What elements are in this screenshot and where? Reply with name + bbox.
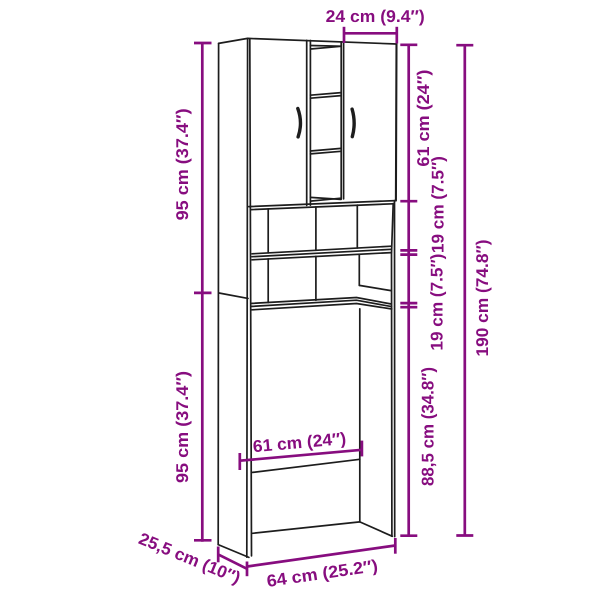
svg-text:19 cm (7.5″): 19 cm (7.5″)	[429, 156, 448, 253]
svg-text:190 cm (74.8″): 190 cm (74.8″)	[473, 240, 492, 357]
svg-text:24 cm (9.4″): 24 cm (9.4″)	[326, 7, 425, 26]
svg-text:95 cm (37.4″): 95 cm (37.4″)	[173, 371, 192, 483]
svg-text:88,5 cm (34.8″): 88,5 cm (34.8″)	[419, 367, 438, 486]
svg-text:19 cm (7.5″): 19 cm (7.5″)	[428, 254, 447, 351]
svg-text:95 cm (37.4″): 95 cm (37.4″)	[173, 108, 192, 220]
svg-text:61 cm (24″): 61 cm (24″)	[414, 70, 433, 167]
